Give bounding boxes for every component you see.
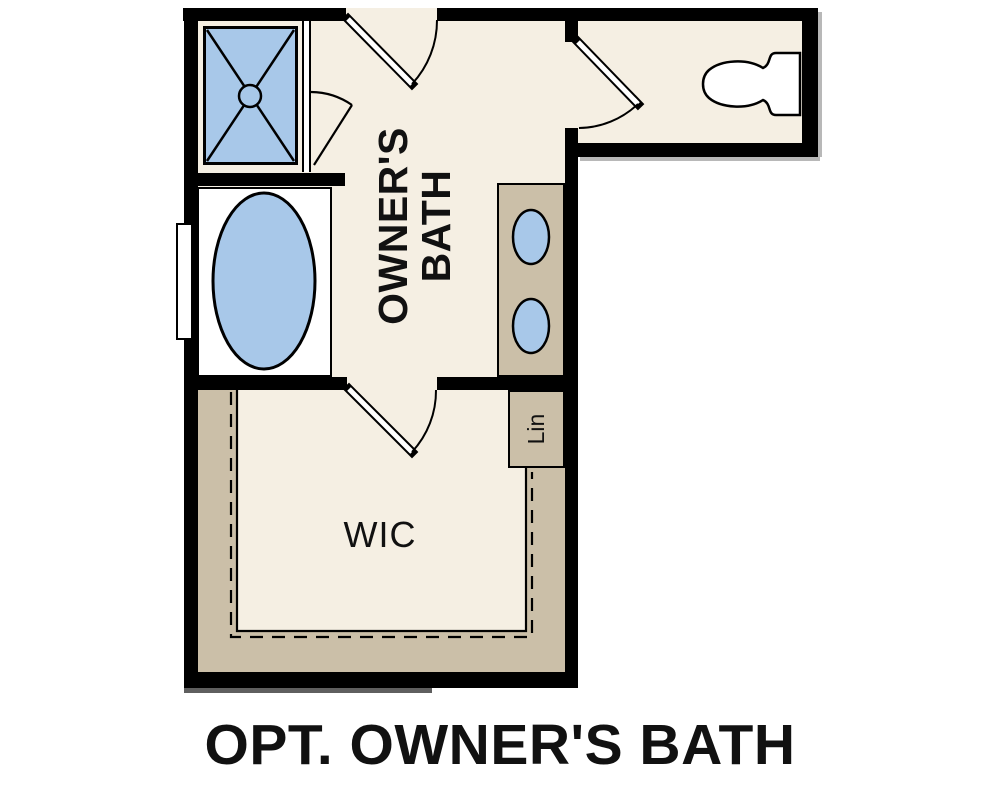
- entry-door-gap: [346, 8, 437, 21]
- wall-top-left: [183, 8, 346, 21]
- wall-left: [184, 8, 198, 688]
- wall-wic-top-right: [437, 377, 578, 390]
- room-label-line1: OWNER'S: [372, 76, 415, 376]
- room-label-owners-bath: OWNER'S BATH: [360, 76, 470, 376]
- wall-wc-divider-top: [565, 21, 578, 42]
- wall-wc-divider-bottom: [565, 128, 578, 143]
- shower-pan: [203, 26, 298, 165]
- wall-top-right: [437, 8, 818, 21]
- wall-east: [565, 143, 578, 688]
- plan-caption: OPT. OWNER'S BATH: [0, 712, 1000, 778]
- wall-shadow-wc-bottom: [580, 157, 820, 161]
- wall-wc-bottom: [565, 143, 818, 157]
- wall-bottom: [184, 672, 578, 688]
- room-label-line2: BATH: [415, 76, 458, 376]
- window: [176, 223, 193, 340]
- wic-shelf-bottom: [198, 632, 565, 672]
- wall-shadow-bottom: [184, 688, 432, 693]
- toilet-room-floor: [578, 21, 802, 143]
- wic-shelf-left: [198, 390, 237, 672]
- wall-wc-right: [802, 8, 818, 157]
- lin-label: Lin: [514, 397, 558, 461]
- wall-below-shower: [184, 173, 345, 186]
- wall-wic-top-left: [184, 377, 347, 390]
- wic-door-gap: [347, 377, 437, 390]
- wall-shadow-right: [818, 12, 822, 157]
- shower-glass-panel: [302, 21, 311, 172]
- wic-shelf-right: [526, 468, 565, 672]
- wc-door-gap: [565, 42, 578, 128]
- floor-plan: OWNER'S BATH WIC Lin OPT. OWNER'S BATH: [0, 0, 1000, 800]
- wic-label: WIC: [300, 514, 460, 556]
- bathtub-deck: [197, 187, 332, 377]
- vanity-cabinet: [497, 183, 565, 377]
